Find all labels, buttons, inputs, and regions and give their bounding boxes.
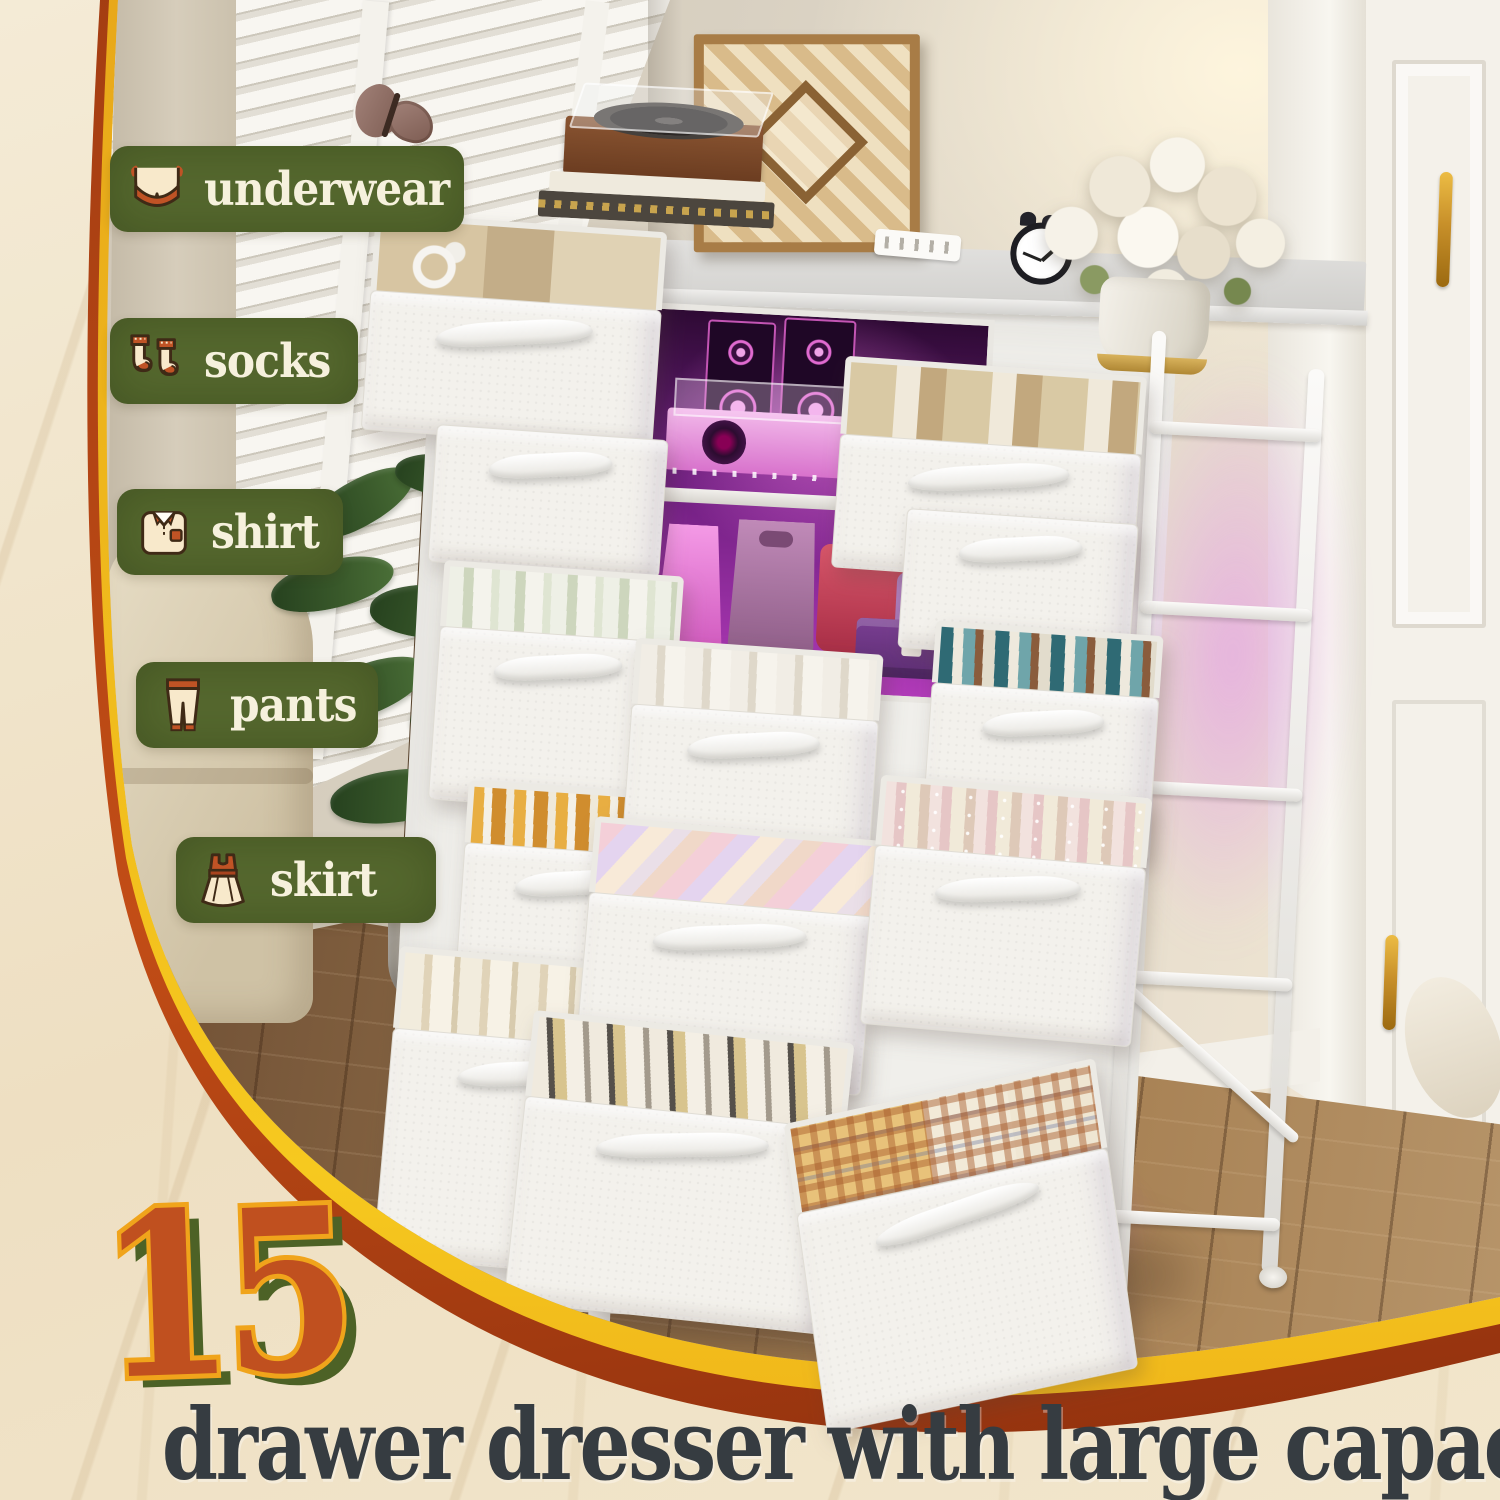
door-panel (1392, 60, 1486, 628)
badge-label: skirt (270, 853, 377, 908)
badge-label: underwear (204, 162, 449, 217)
frame-foot (1259, 1265, 1288, 1288)
drawer-handle (595, 1132, 768, 1159)
drawer-front (427, 424, 668, 578)
badge-pants: pants (136, 662, 378, 748)
drawer-closed (427, 424, 668, 578)
pants-icon (152, 674, 214, 736)
drawer-front (860, 844, 1147, 1047)
drawer-front (361, 290, 662, 450)
drawer-handle (935, 875, 1082, 904)
drawer-handle (652, 922, 807, 951)
drawer-open-breakout (784, 1058, 1139, 1434)
drawer-handle (686, 730, 820, 761)
bag-handle (759, 530, 794, 548)
drawer-handle (958, 534, 1083, 564)
drawer-handle (982, 708, 1105, 738)
headline-caption: drawer dresser with large capacity (0, 1388, 1500, 1500)
drawer-handle (907, 461, 1070, 493)
drawer-handle (435, 317, 593, 349)
side-frame-rung (1120, 970, 1292, 992)
badge-label: shirt (211, 505, 319, 560)
tote-bag (727, 519, 820, 651)
drawer-handle (493, 652, 623, 683)
badge-label: socks (204, 334, 330, 389)
product-image: underwear socks shirt (0, 0, 1500, 1500)
badge-shirt: shirt (117, 489, 343, 575)
socks-icon (126, 330, 188, 392)
outlet-slots (884, 236, 951, 254)
drawer-handle (488, 450, 613, 480)
drawer-open (860, 775, 1153, 1048)
drawer-open-underwear (361, 212, 667, 450)
record-player-lid (569, 82, 774, 137)
dress-icon (192, 849, 254, 911)
badge-underwear: underwear (110, 146, 464, 232)
badge-socks: socks (110, 318, 358, 404)
side-frame-rung (1108, 1209, 1280, 1231)
bra-icon (126, 158, 188, 220)
armchair-seam (108, 768, 313, 784)
badge-skirt: skirt (176, 837, 436, 923)
shirt-icon (133, 501, 195, 563)
badge-label: pants (230, 678, 357, 733)
